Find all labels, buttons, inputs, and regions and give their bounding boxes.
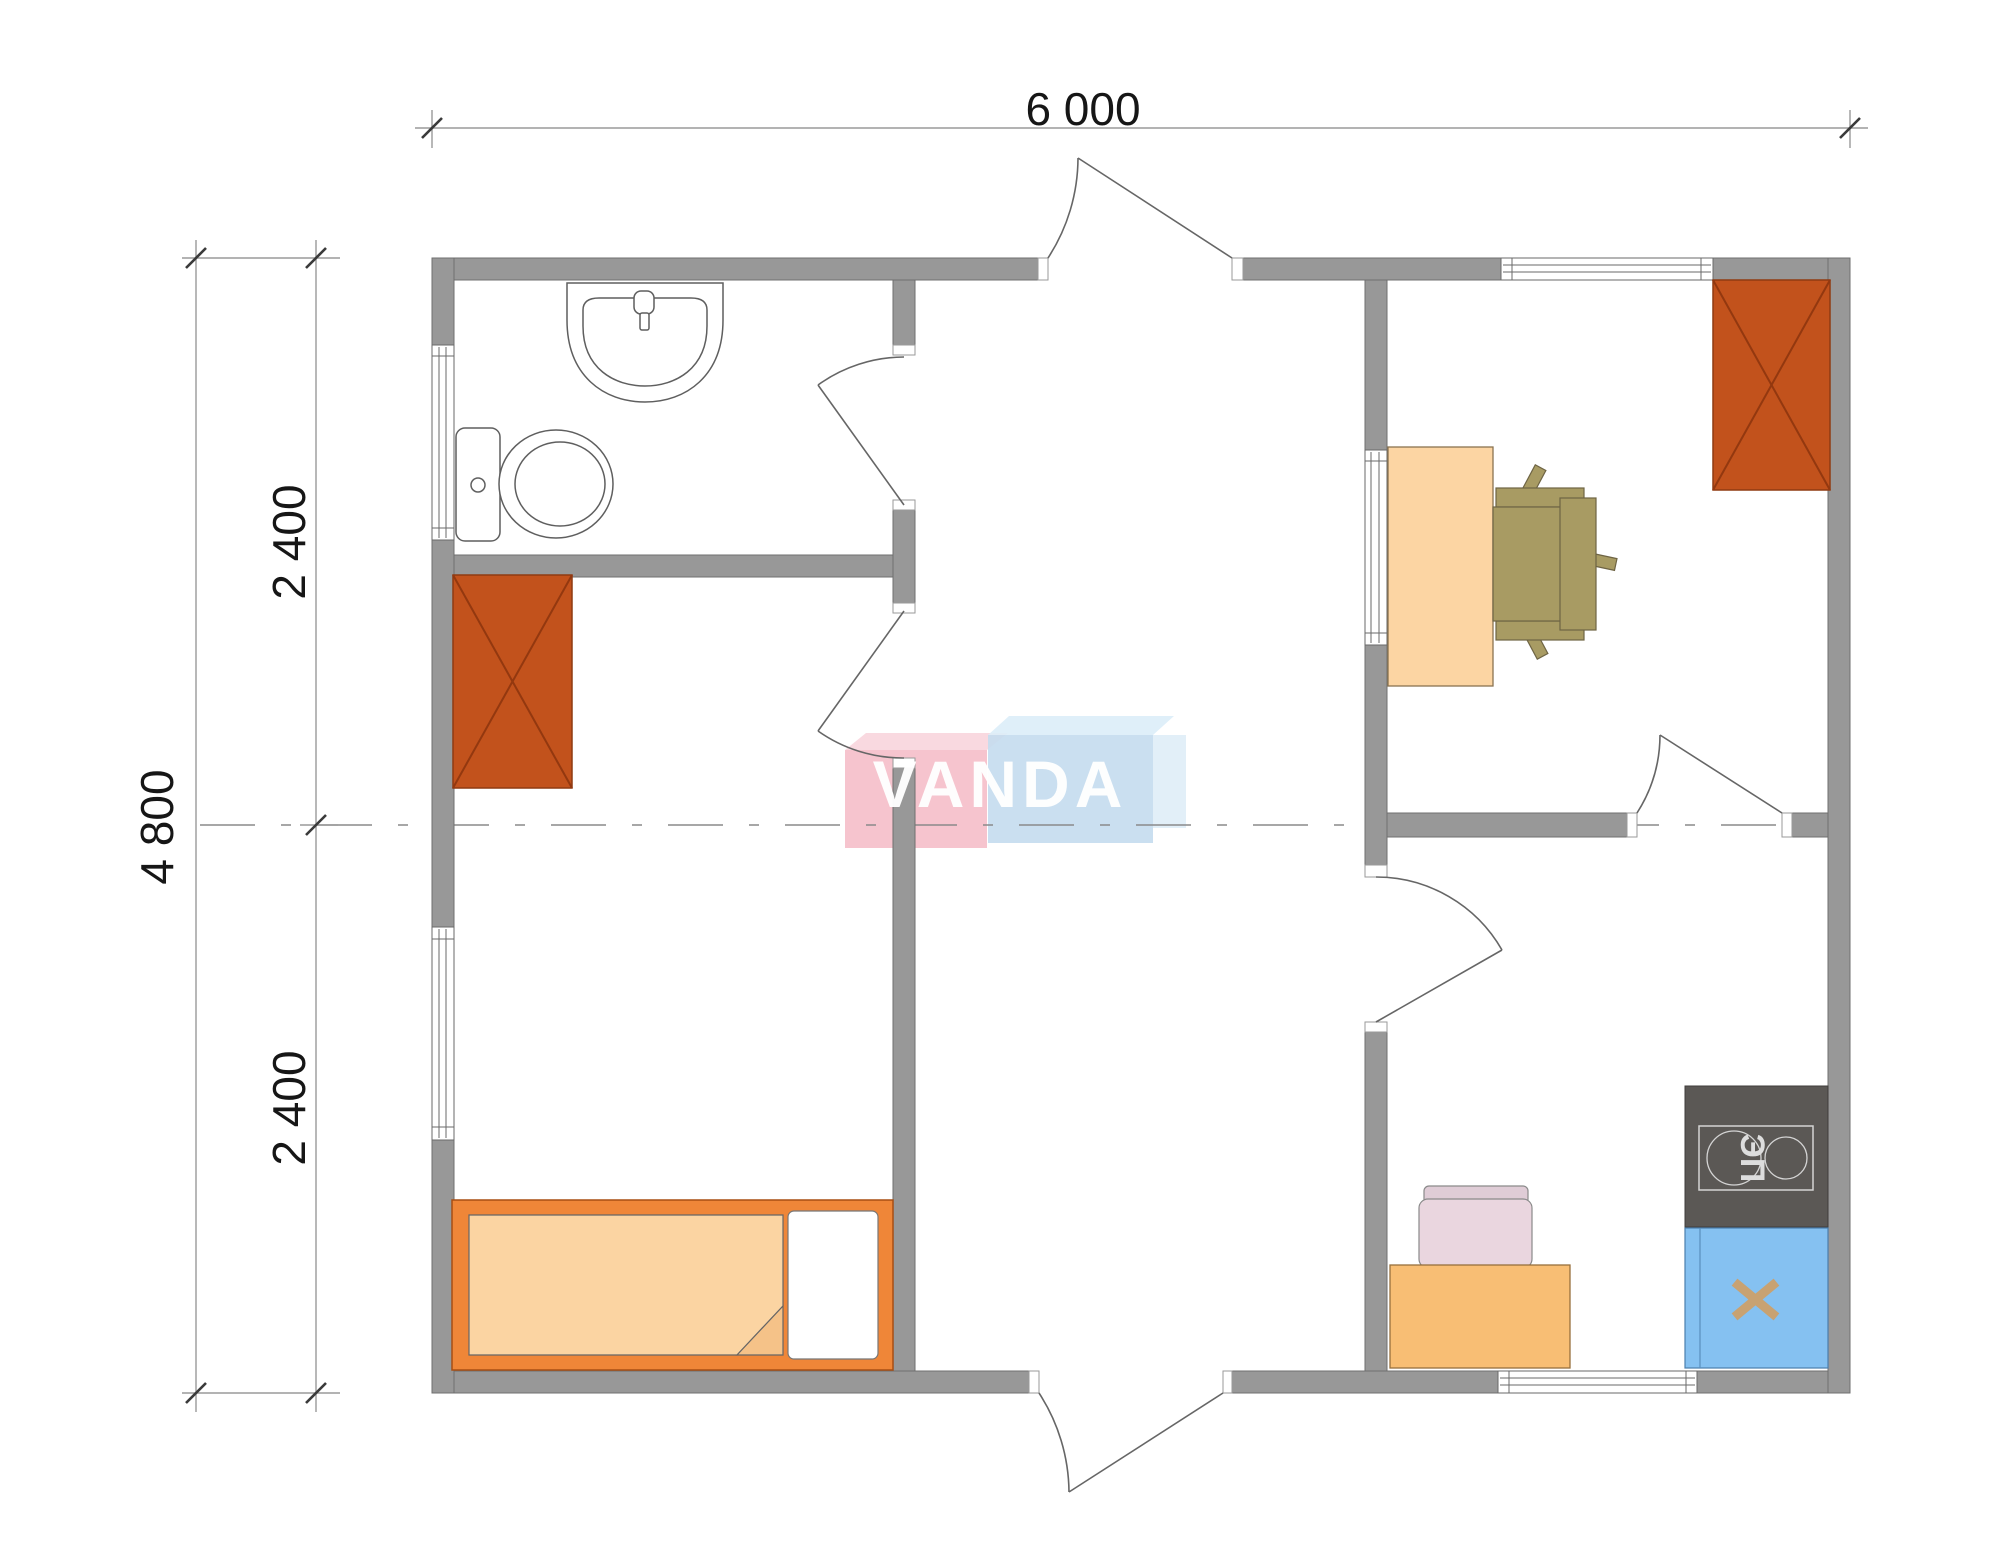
dimension-height-upper-label: 2 400 (262, 484, 316, 599)
door-entrance-top (1048, 158, 1232, 258)
wall-bedroom-right (893, 768, 915, 1371)
dimension-height-lower-label: 2 400 (262, 1050, 316, 1165)
kitchen-chair (1419, 1186, 1532, 1268)
office-desk (1388, 447, 1493, 686)
door-bathroom (818, 357, 904, 505)
wall-bottom-mid-segment (1232, 1371, 1498, 1393)
wall-hall-left-mid (893, 510, 915, 603)
vanda-watermark-text: VANDA (873, 746, 1128, 822)
watermark-blue-top-face (988, 716, 1174, 735)
door-exit-bottom (1039, 1393, 1223, 1492)
bathroom-sink (567, 283, 723, 402)
window-left-bathroom (432, 345, 454, 540)
kitchen-table (1390, 1265, 1570, 1368)
wall-bathroom-bottom (454, 555, 893, 577)
stove-label: ЭП (1733, 1134, 1771, 1183)
window-top-right (1501, 258, 1713, 280)
bed-pillow (788, 1211, 878, 1359)
door-office (1637, 735, 1782, 813)
wall-right-segment (1828, 258, 1850, 1393)
bed (452, 1200, 893, 1370)
kitchen-sink-cabinet (1685, 1228, 1828, 1368)
wall-bottom-left-segment (432, 1371, 1029, 1393)
chair-seat (1493, 507, 1563, 621)
wall-hall-right-upper (1365, 280, 1387, 450)
wall-left-lower-segment (432, 1140, 454, 1393)
chair-backrest (1560, 498, 1596, 630)
wall-hall-left-stub (893, 280, 915, 345)
toilet (456, 428, 613, 541)
wall-bottom-right-segment (1697, 1371, 1850, 1393)
stove: ЭП (1685, 1086, 1828, 1227)
floor-plan-canvas: ЭП 6 000 4 800 2 400 2 400 VANDA (0, 0, 2000, 1563)
wall-hall-right-mid (1365, 645, 1387, 865)
wall-hall-right-lower (1365, 1032, 1387, 1371)
window-left-bedroom (432, 927, 454, 1140)
door-kitchen (1376, 877, 1502, 1022)
interior-opening-office (1365, 450, 1387, 645)
wardrobe-left (453, 575, 572, 788)
dimension-height-total-label: 4 800 (130, 769, 184, 884)
dimension-width-label: 6 000 (1025, 82, 1140, 136)
wall-top-mid-segment (1243, 258, 1501, 280)
wall-right-rooms-divider-end (1792, 813, 1828, 837)
watermark-blue-side-face (1153, 735, 1186, 828)
wardrobe-right (1713, 280, 1830, 490)
wall-right-rooms-divider (1387, 813, 1627, 837)
office-chair (1493, 465, 1617, 659)
wall-top-left-segment (432, 258, 1038, 280)
bed-blanket (469, 1215, 783, 1355)
wall-left-upper-segment (432, 258, 454, 345)
window-bottom-right (1498, 1371, 1697, 1393)
wall-left-mid-segment (432, 540, 454, 927)
